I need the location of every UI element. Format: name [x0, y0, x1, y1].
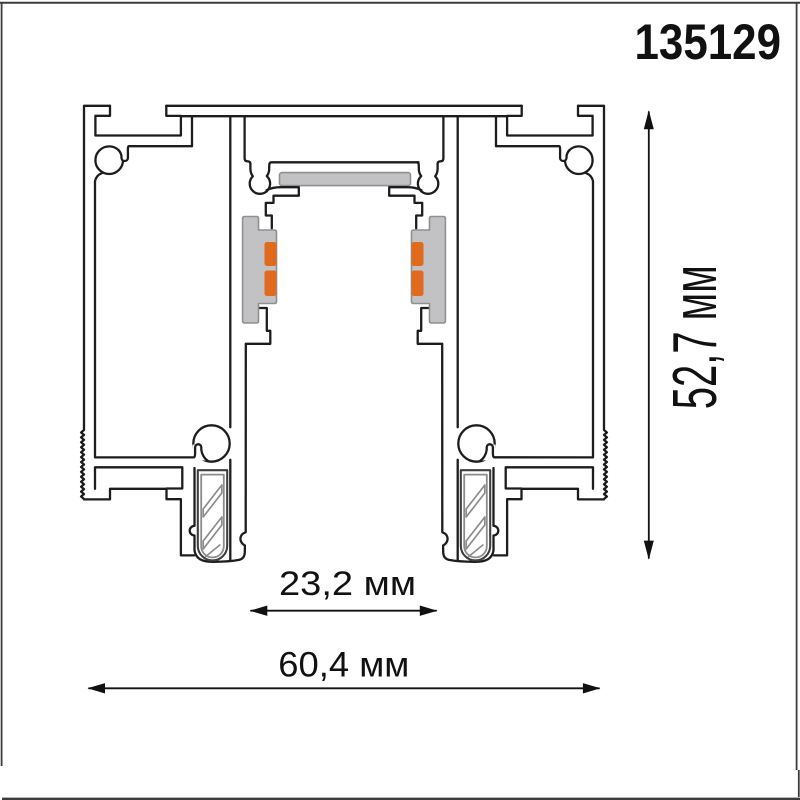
svg-text:52,7 мм: 52,7 мм	[660, 265, 730, 409]
svg-text:23,2 мм: 23,2 мм	[279, 565, 416, 603]
svg-text:60,4 мм: 60,4 мм	[278, 645, 409, 684]
svg-text:135129: 135129	[635, 14, 782, 70]
